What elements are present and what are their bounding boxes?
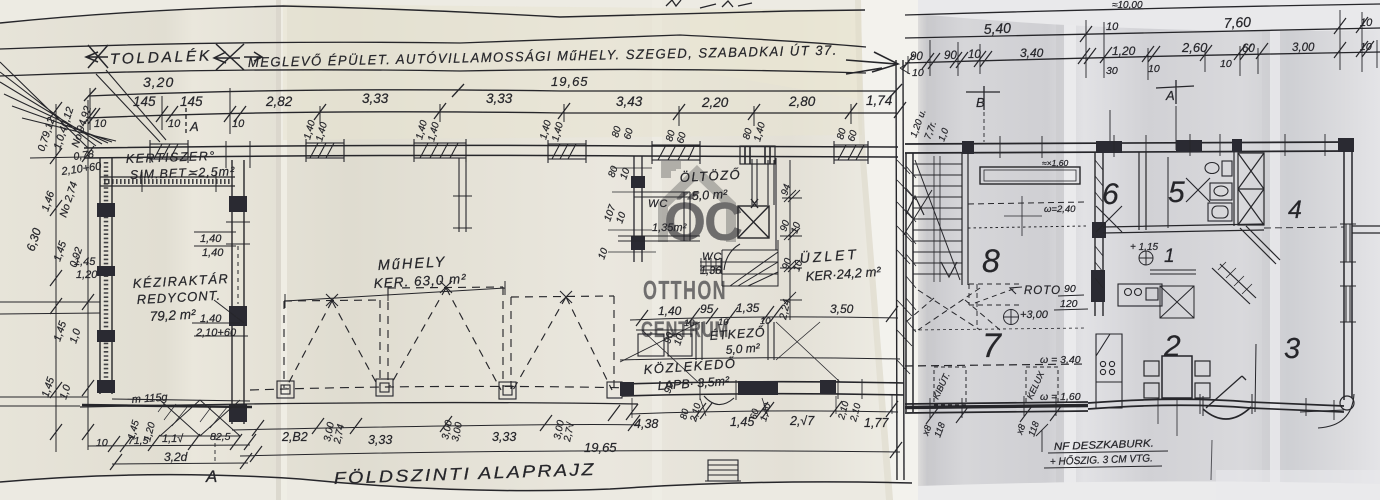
svg-text:7: 7 xyxy=(982,327,1002,365)
svg-text:3,33: 3,33 xyxy=(368,433,392,447)
svg-text:3,33: 3,33 xyxy=(492,430,516,444)
svg-text:2,10+60: 2,10+60 xyxy=(195,327,237,339)
svg-text:5,0 m²: 5,0 m² xyxy=(725,341,761,357)
svg-text:ω=2,40: ω=2,40 xyxy=(1044,204,1076,215)
svg-text:1,35: 1,35 xyxy=(736,301,760,315)
svg-text:3,33: 3,33 xyxy=(362,91,389,106)
svg-text:2,60: 2,60 xyxy=(1181,40,1208,55)
svg-text:10: 10 xyxy=(1360,41,1372,53)
svg-text:90: 90 xyxy=(1064,283,1076,295)
svg-text:6: 6 xyxy=(1102,178,1119,211)
svg-text:A: A xyxy=(1165,88,1175,103)
svg-text:3,2d: 3,2d xyxy=(164,450,188,464)
svg-text:A: A xyxy=(205,467,217,486)
svg-text:79,2 m²: 79,2 m² xyxy=(149,307,196,324)
svg-text:2,20: 2,20 xyxy=(701,95,729,110)
svg-text:10: 10 xyxy=(684,318,695,329)
svg-text:145: 145 xyxy=(133,94,156,109)
svg-text:≈×1,60: ≈×1,60 xyxy=(1042,158,1068,168)
svg-text:95: 95 xyxy=(700,302,714,316)
svg-text:2: 2 xyxy=(1163,330,1181,363)
svg-text:120: 120 xyxy=(1060,298,1078,310)
svg-text:ω = 3,40: ω = 3,40 xyxy=(1040,354,1081,366)
svg-text:10: 10 xyxy=(232,118,245,130)
svg-text:145: 145 xyxy=(180,94,203,109)
svg-text:2,80: 2,80 xyxy=(788,94,816,109)
svg-text:1,40: 1,40 xyxy=(200,233,222,245)
svg-text:3,20: 3,20 xyxy=(143,74,174,90)
svg-text:A: A xyxy=(189,119,199,134)
svg-text:2,√7: 2,√7 xyxy=(789,414,815,428)
svg-text:82,5: 82,5 xyxy=(210,431,231,443)
svg-text:19,65: 19,65 xyxy=(551,74,589,89)
svg-text:1,1√: 1,1√ xyxy=(162,433,184,445)
svg-text:8: 8 xyxy=(982,243,1000,279)
svg-text:1,40: 1,40 xyxy=(658,304,682,318)
svg-text:30: 30 xyxy=(1106,65,1118,77)
svg-text:1,20: 1,20 xyxy=(76,269,98,281)
svg-text:OTTHON: OTTHON xyxy=(643,275,727,305)
svg-text:1,40: 1,40 xyxy=(202,247,224,259)
svg-text:10: 10 xyxy=(168,118,181,130)
svg-text:2,82: 2,82 xyxy=(265,94,293,109)
svg-text:60: 60 xyxy=(1242,43,1255,55)
svg-text:+ 1,15: + 1,15 xyxy=(1130,242,1159,253)
svg-text:90: 90 xyxy=(910,51,923,63)
svg-text:3,43: 3,43 xyxy=(616,94,643,109)
svg-text:1,35m²: 1,35m² xyxy=(652,222,687,234)
svg-text:3,40: 3,40 xyxy=(1020,46,1044,60)
svg-text:WC: WC xyxy=(702,251,722,263)
svg-text:3,33: 3,33 xyxy=(486,91,513,106)
svg-text:ROTO: ROTO xyxy=(1024,285,1061,297)
svg-text:3,00: 3,00 xyxy=(1292,42,1315,54)
svg-text:ω = 1,60: ω = 1,60 xyxy=(1040,391,1081,403)
svg-text:TOLDALÉK: TOLDALÉK xyxy=(110,47,213,68)
svg-text:1,36: 1,36 xyxy=(700,265,722,277)
svg-text:1,77: 1,77 xyxy=(864,416,889,430)
svg-text:B: B xyxy=(976,95,985,110)
svg-text:WC: WC xyxy=(648,198,668,210)
svg-text:10: 10 xyxy=(968,49,981,61)
svg-text:3,50: 3,50 xyxy=(830,302,854,316)
svg-text:10: 10 xyxy=(1360,17,1373,29)
svg-text:5,40: 5,40 xyxy=(983,20,1011,37)
svg-text:1,45: 1,45 xyxy=(730,415,754,429)
svg-text:10: 10 xyxy=(718,317,729,328)
svg-text:90: 90 xyxy=(944,50,957,62)
svg-text:ÖLTÖZŐ: ÖLTÖZŐ xyxy=(679,167,741,185)
svg-text:10: 10 xyxy=(1220,58,1232,70)
svg-text:7,60: 7,60 xyxy=(1223,14,1251,31)
svg-text:10: 10 xyxy=(1148,63,1160,75)
svg-text:1: 1 xyxy=(1164,246,1175,267)
svg-text:m 115g: m 115g xyxy=(131,391,169,406)
svg-text:5: 5 xyxy=(1168,176,1185,209)
svg-text:71,5: 71,5 xyxy=(128,435,149,447)
svg-text:4,38: 4,38 xyxy=(634,417,658,431)
svg-text:10: 10 xyxy=(912,67,924,79)
svg-text:5,0 m²: 5,0 m² xyxy=(691,187,728,203)
svg-text:10: 10 xyxy=(94,118,107,130)
svg-text:19,65: 19,65 xyxy=(584,440,617,455)
svg-text:2,B2: 2,B2 xyxy=(281,430,308,444)
svg-text:3: 3 xyxy=(1284,333,1300,365)
svg-text:4: 4 xyxy=(1288,196,1302,224)
svg-text:10: 10 xyxy=(1106,21,1119,33)
svg-text:10: 10 xyxy=(96,437,108,449)
svg-text:≈10,00: ≈10,00 xyxy=(1112,0,1143,11)
svg-text:1,74: 1,74 xyxy=(866,93,892,108)
svg-text:1,20: 1,20 xyxy=(1112,44,1136,58)
svg-text:+3,00: +3,00 xyxy=(1020,309,1049,321)
